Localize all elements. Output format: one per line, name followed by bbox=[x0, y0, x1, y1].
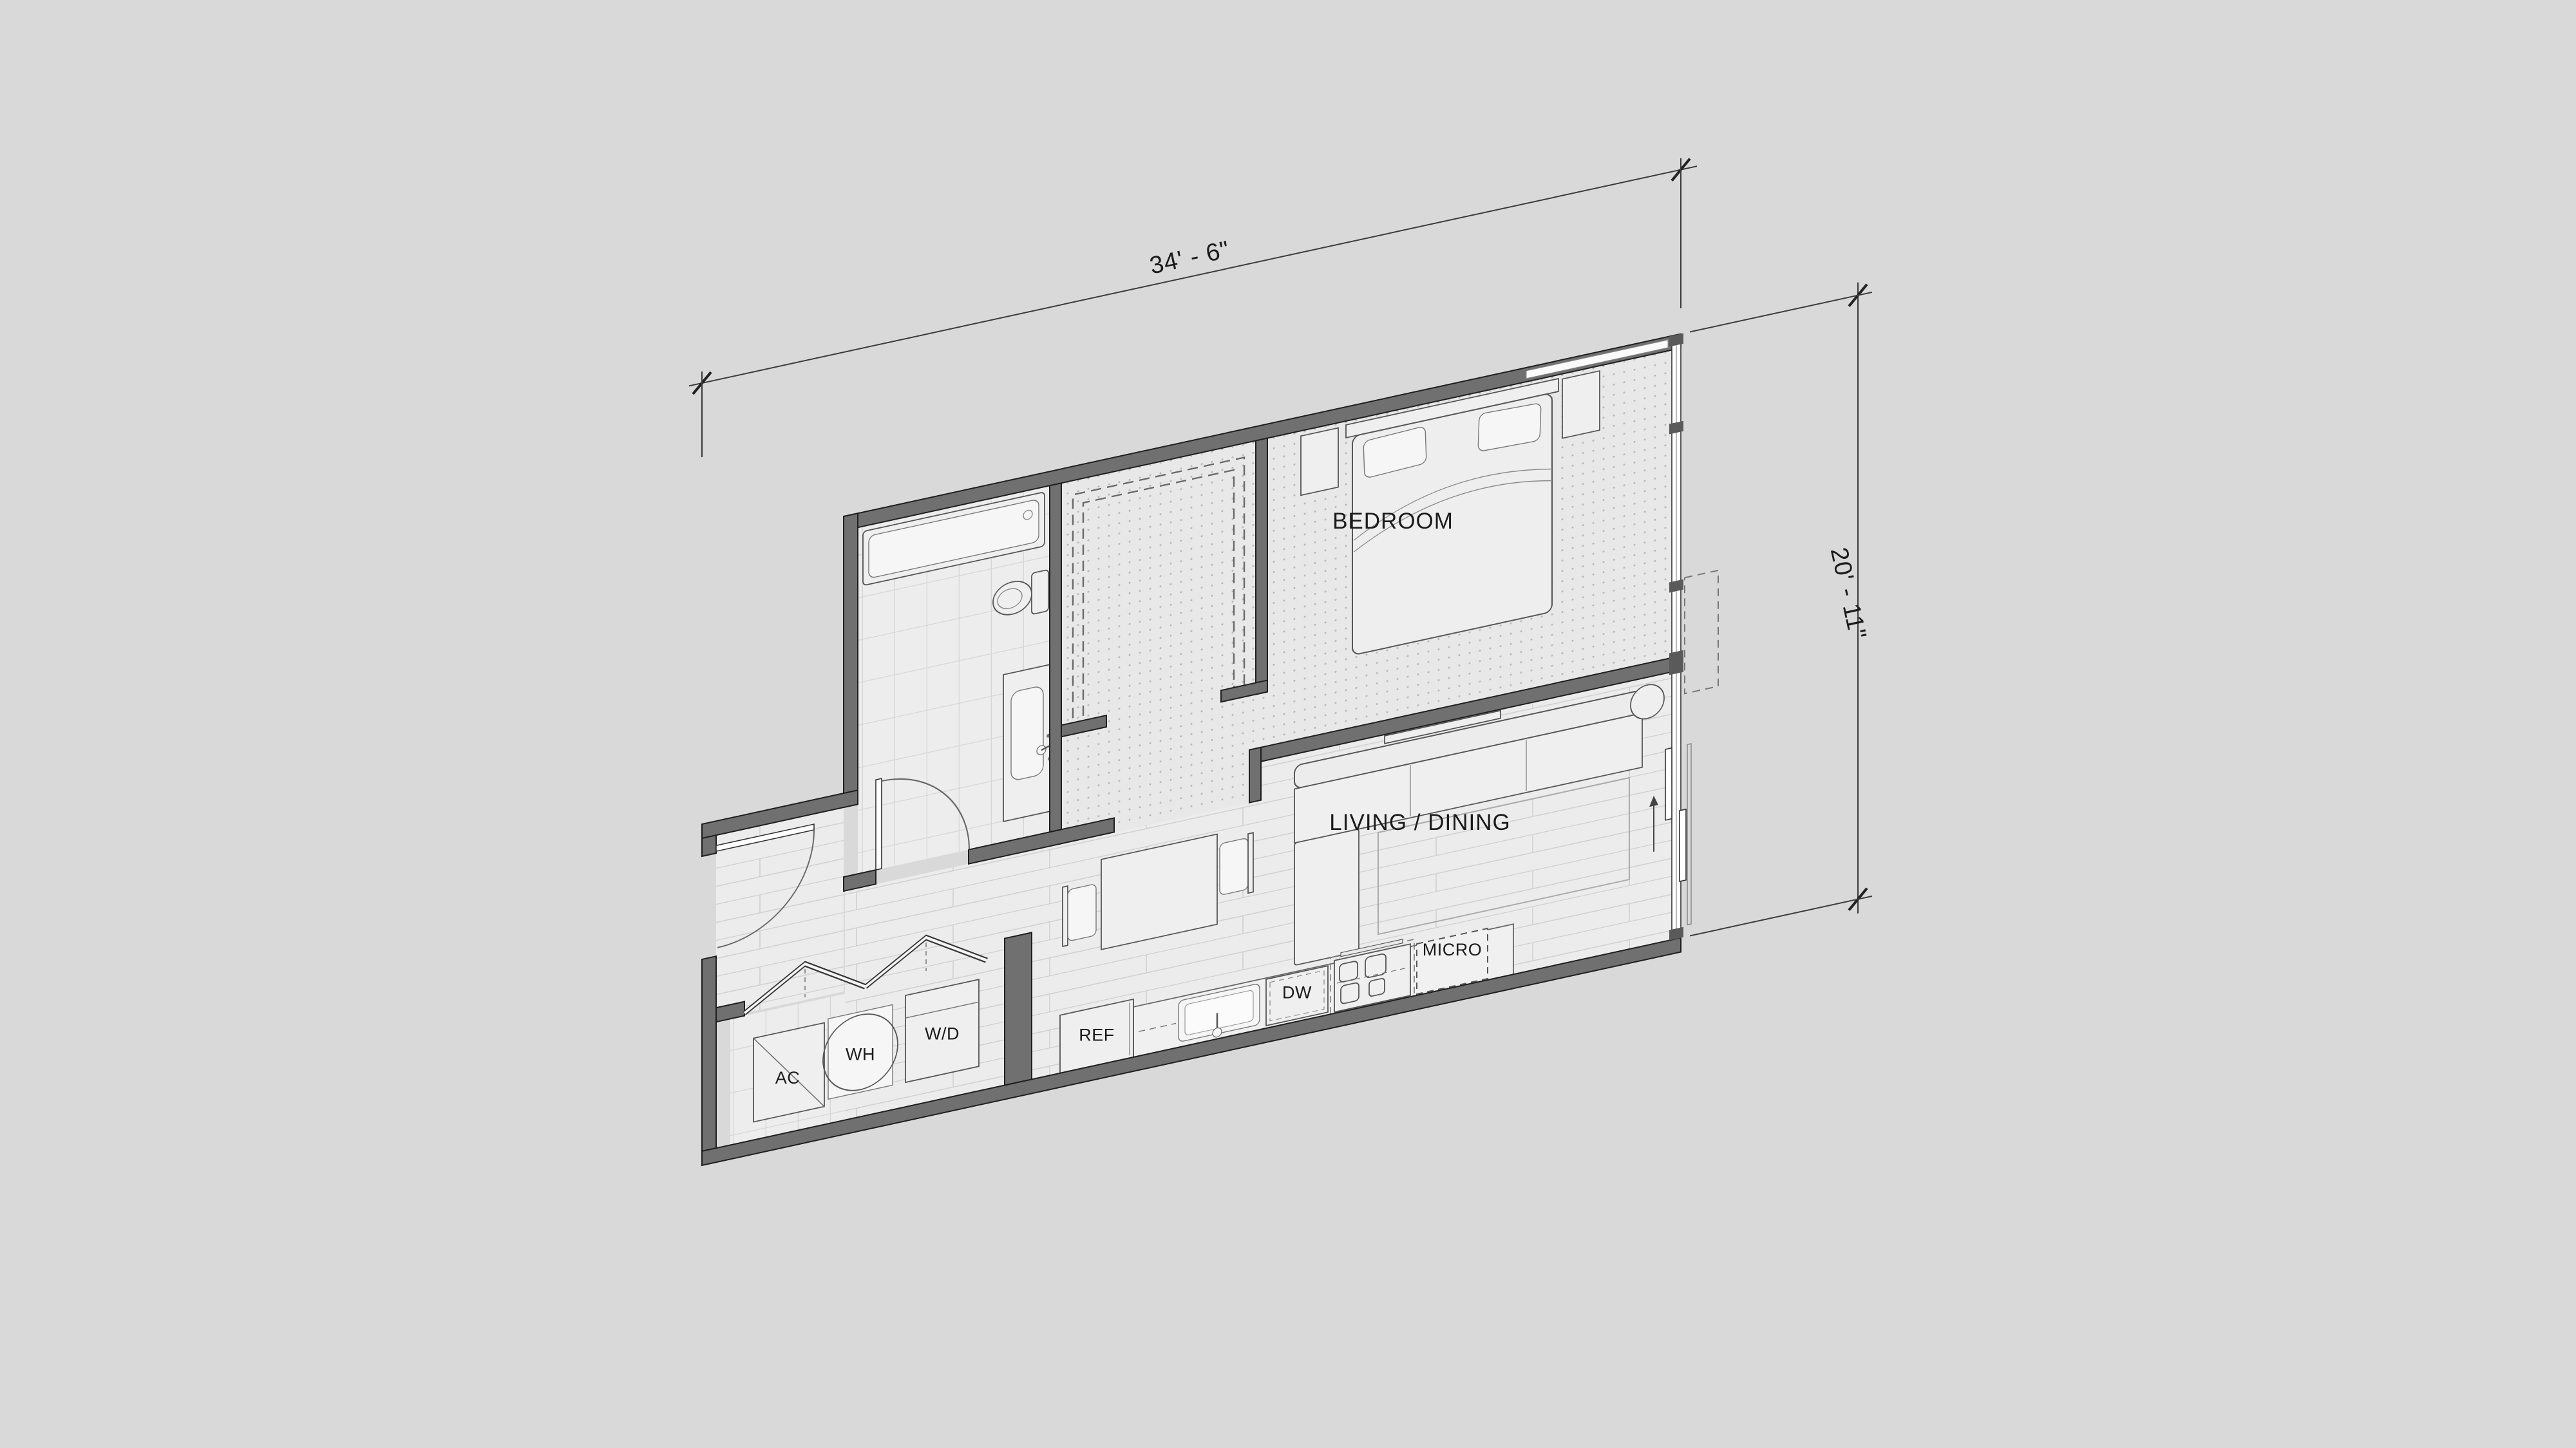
ac-label: AC bbox=[775, 1068, 800, 1087]
ref-label: REF bbox=[1079, 1025, 1115, 1044]
nightstand-right bbox=[1562, 371, 1600, 438]
wd-label: W/D bbox=[925, 1024, 960, 1044]
living-dining-label: LIVING / DINING bbox=[1329, 810, 1510, 835]
dining-chair-right-back bbox=[1248, 832, 1253, 893]
micro-label: MICRO bbox=[1423, 940, 1482, 959]
dining-chair-left-back bbox=[1063, 886, 1068, 946]
dw-label: DW bbox=[1282, 983, 1312, 1002]
wall-west-bath bbox=[844, 513, 858, 807]
dining-chair-left bbox=[1068, 884, 1096, 942]
wall-west-entry-a bbox=[702, 835, 716, 856]
sofa-chaise bbox=[1294, 829, 1359, 966]
wall-utility-east bbox=[1005, 932, 1032, 1085]
sliding-door-outer-panel bbox=[1680, 809, 1686, 881]
wall-closet-east bbox=[1256, 438, 1267, 695]
wall-bedroom-stub bbox=[1249, 748, 1261, 803]
vanity-sink bbox=[1003, 664, 1054, 822]
dining-chair-right bbox=[1220, 838, 1248, 896]
floor-plan-page: 34' - 6" 20' - 11" BEDROOM LIVING / DINI… bbox=[0, 0, 2576, 1448]
bath-door-leaf bbox=[876, 778, 882, 870]
sliding-door-inner-panel bbox=[1665, 748, 1672, 820]
mullion-icon bbox=[1669, 650, 1683, 675]
wh-label: WH bbox=[846, 1044, 875, 1064]
bedroom-label: BEDROOM bbox=[1332, 509, 1454, 534]
floor-plan-canvas: 34' - 6" 20' - 11" BEDROOM LIVING / DINI… bbox=[0, 0, 2576, 1448]
wall-west-entry-b bbox=[702, 956, 716, 1151]
nightstand-left bbox=[1301, 428, 1338, 496]
wall-bath-east bbox=[1050, 483, 1061, 832]
